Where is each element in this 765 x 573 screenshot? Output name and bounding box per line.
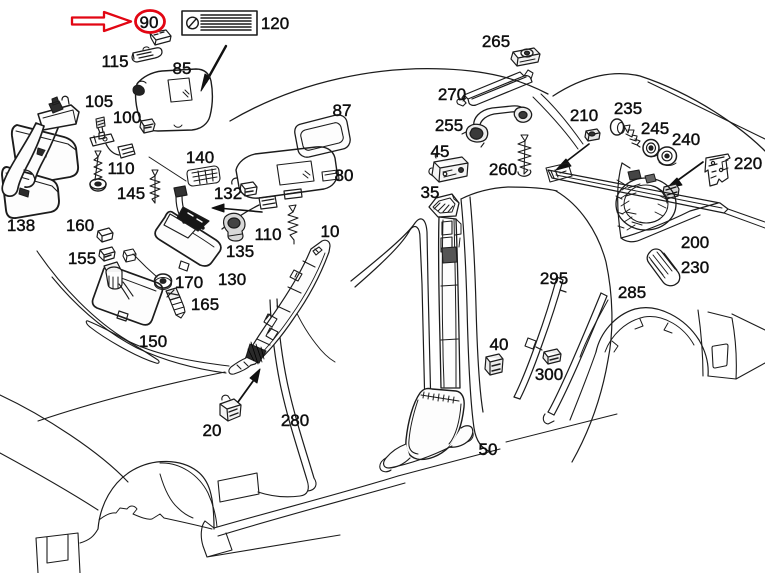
svg-text:270: 270: [438, 85, 466, 104]
svg-text:240: 240: [672, 130, 700, 149]
svg-text:245: 245: [641, 119, 669, 138]
svg-text:255: 255: [435, 116, 463, 135]
svg-text:295: 295: [540, 269, 568, 288]
svg-text:145: 145: [117, 184, 145, 203]
svg-text:110: 110: [107, 159, 134, 178]
svg-text:265: 265: [482, 32, 510, 51]
svg-text:130: 130: [218, 270, 246, 289]
svg-text:160: 160: [66, 216, 94, 235]
svg-text:285: 285: [618, 283, 646, 302]
svg-text:20: 20: [203, 421, 222, 440]
svg-text:110: 110: [254, 225, 281, 244]
svg-text:85: 85: [173, 59, 192, 78]
svg-text:115: 115: [101, 52, 128, 71]
svg-text:300: 300: [535, 365, 563, 384]
svg-text:90: 90: [140, 13, 159, 32]
svg-text:135: 135: [226, 242, 254, 261]
svg-text:140: 140: [186, 148, 214, 167]
svg-text:200: 200: [681, 233, 709, 252]
svg-text:280: 280: [281, 411, 309, 430]
svg-text:165: 165: [191, 295, 219, 314]
svg-text:210: 210: [570, 106, 598, 125]
svg-text:40: 40: [490, 335, 509, 354]
svg-text:138: 138: [7, 216, 35, 235]
svg-text:10: 10: [321, 222, 340, 241]
svg-text:45: 45: [431, 142, 450, 161]
svg-text:150: 150: [139, 332, 167, 351]
svg-text:170: 170: [175, 273, 203, 292]
svg-text:105: 105: [85, 92, 113, 111]
svg-text:132: 132: [214, 184, 242, 203]
svg-text:235: 235: [614, 99, 642, 118]
svg-text:80: 80: [335, 166, 354, 185]
svg-text:220: 220: [734, 154, 762, 173]
svg-text:155: 155: [68, 249, 96, 268]
svg-text:120: 120: [261, 14, 289, 33]
svg-text:50: 50: [479, 440, 498, 459]
svg-text:260: 260: [489, 160, 517, 179]
svg-text:87: 87: [333, 101, 352, 120]
svg-text:35: 35: [421, 183, 440, 202]
svg-text:230: 230: [681, 258, 709, 277]
svg-text:100: 100: [113, 108, 141, 127]
